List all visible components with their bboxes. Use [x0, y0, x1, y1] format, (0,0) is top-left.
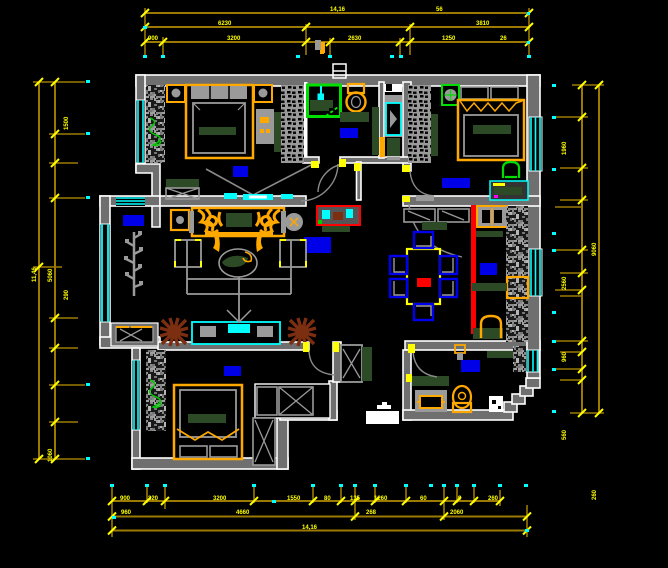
svg-text:1550: 1550	[287, 496, 301, 502]
svg-text:14,16: 14,16	[330, 7, 346, 13]
svg-text:260: 260	[592, 489, 598, 500]
svg-text:290: 290	[64, 289, 70, 300]
svg-text:56: 56	[436, 7, 443, 13]
svg-text:2630: 2630	[348, 36, 362, 42]
svg-text:2560: 2560	[562, 276, 568, 290]
svg-text:900: 900	[148, 36, 159, 42]
svg-text:1260: 1260	[374, 496, 388, 502]
svg-text:4660: 4660	[236, 510, 250, 516]
svg-text:9060: 9060	[592, 242, 598, 256]
svg-text:320: 320	[148, 496, 159, 502]
svg-text:560: 560	[562, 429, 568, 440]
svg-text:3810: 3810	[476, 21, 490, 27]
svg-text:268: 268	[366, 510, 377, 516]
svg-text:900: 900	[120, 496, 131, 502]
svg-text:60: 60	[420, 496, 427, 502]
svg-text:1500: 1500	[64, 116, 70, 130]
svg-text:135: 135	[350, 496, 361, 502]
svg-text:1250: 1250	[442, 36, 456, 42]
svg-text:260: 260	[488, 496, 499, 502]
svg-text:26: 26	[500, 36, 507, 42]
svg-text:1060: 1060	[48, 448, 54, 462]
svg-text:5060: 5060	[48, 268, 54, 282]
svg-text:11,46: 11,46	[32, 267, 38, 282]
svg-text:80: 80	[324, 496, 331, 502]
svg-text:1960: 1960	[562, 141, 568, 155]
svg-text:14,16: 14,16	[302, 525, 318, 531]
svg-text:3200: 3200	[213, 496, 227, 502]
svg-text:6230: 6230	[218, 21, 232, 27]
svg-text:3200: 3200	[227, 36, 241, 42]
svg-text:960: 960	[121, 510, 132, 516]
svg-text:960: 960	[562, 351, 568, 362]
svg-text:2060: 2060	[450, 510, 464, 516]
